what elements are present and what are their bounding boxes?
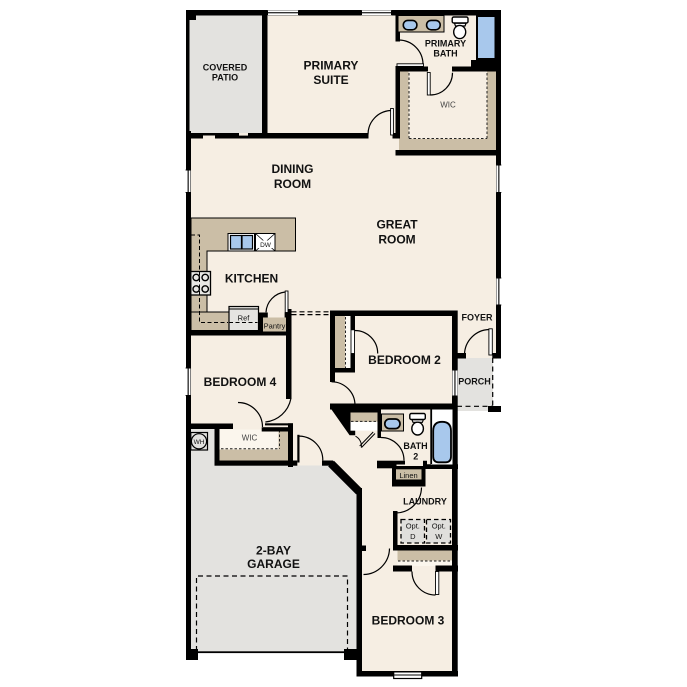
svg-text:GREAT: GREAT: [376, 218, 418, 232]
svg-text:WIC: WIC: [242, 434, 258, 443]
svg-text:SUITE: SUITE: [313, 73, 348, 87]
svg-text:FOYER: FOYER: [461, 313, 493, 323]
svg-text:2-BAY: 2-BAY: [256, 544, 291, 558]
svg-text:2: 2: [413, 452, 418, 462]
svg-text:Opt.: Opt.: [432, 522, 446, 531]
svg-text:WH: WH: [194, 439, 205, 446]
svg-text:Pantry: Pantry: [264, 322, 286, 331]
svg-text:D: D: [410, 532, 416, 541]
svg-text:ROOM: ROOM: [274, 177, 311, 191]
svg-text:Opt.: Opt.: [406, 522, 420, 531]
svg-text:DINING: DINING: [272, 162, 314, 176]
svg-text:KITCHEN: KITCHEN: [225, 272, 278, 286]
svg-text:WIC: WIC: [440, 101, 456, 110]
svg-text:PORCH: PORCH: [458, 377, 491, 387]
svg-text:PRIMARY: PRIMARY: [304, 59, 359, 73]
svg-text:DW: DW: [260, 242, 272, 249]
svg-text:COVERED: COVERED: [203, 63, 248, 73]
svg-text:BEDROOM 2: BEDROOM 2: [368, 353, 441, 367]
svg-text:PATIO: PATIO: [212, 73, 238, 83]
svg-text:BATH: BATH: [433, 49, 457, 59]
svg-text:BEDROOM 3: BEDROOM 3: [372, 614, 445, 628]
svg-text:Linen: Linen: [399, 471, 417, 480]
svg-text:PRIMARY: PRIMARY: [425, 39, 466, 49]
svg-text:BATH: BATH: [403, 441, 427, 451]
svg-text:ROOM: ROOM: [378, 233, 415, 247]
svg-text:GARAGE: GARAGE: [247, 557, 300, 571]
svg-text:Ref: Ref: [238, 314, 251, 323]
svg-text:LAUNDRY: LAUNDRY: [403, 497, 447, 507]
svg-text:W: W: [435, 532, 443, 541]
svg-text:BEDROOM 4: BEDROOM 4: [204, 375, 277, 389]
